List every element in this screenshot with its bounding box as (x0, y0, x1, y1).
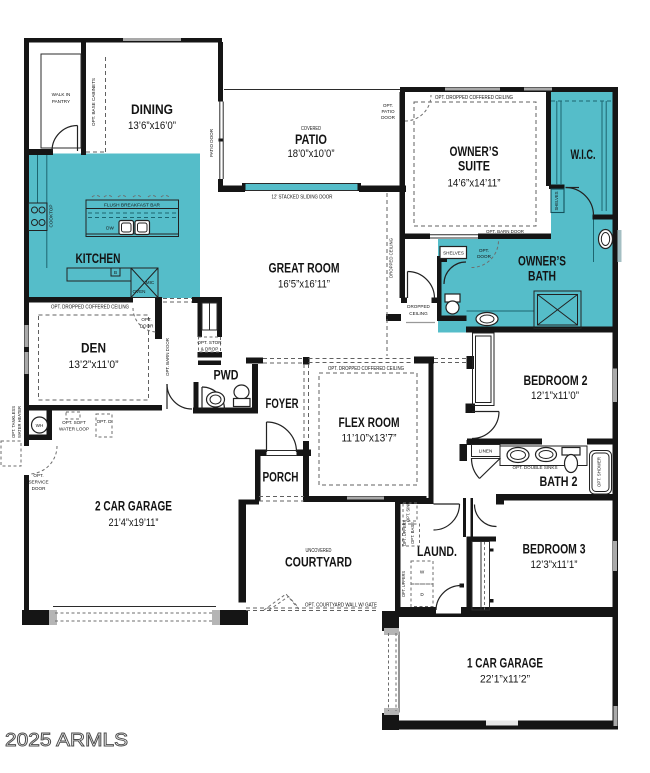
svg-text:OPT. TANKLESS: OPT. TANKLESS (11, 406, 16, 438)
svg-text:LAUND.: LAUND. (417, 544, 457, 559)
svg-text:SERVICE: SERVICE (28, 480, 48, 485)
svg-text:DROPPED: DROPPED (407, 304, 430, 309)
svg-text:OPT.: OPT. (33, 473, 43, 478)
svg-text:18’0”x10’0”: 18’0”x10’0” (288, 148, 335, 160)
svg-text:OPT. BARN DOOR: OPT. BARN DOOR (165, 337, 170, 376)
svg-text:MIC: MIC (146, 280, 155, 285)
svg-text:FLEX ROOM: FLEX ROOM (339, 415, 400, 430)
svg-text:PATIO: PATIO (381, 109, 395, 114)
svg-text:OPT. BASE CABINETS: OPT. BASE CABINETS (91, 78, 96, 126)
svg-text:WATER LOOP: WATER LOOP (59, 427, 89, 432)
svg-text:GREAT ROOM: GREAT ROOM (269, 261, 340, 276)
svg-text:SUITE: SUITE (458, 159, 490, 174)
svg-text:WATER HEATER: WATER HEATER (17, 405, 22, 438)
svg-text:CEILING: CEILING (409, 311, 428, 316)
svg-text:BATH: BATH (528, 269, 556, 284)
svg-text:OPT. DROPPED COFFERED CEILING: OPT. DROPPED COFFERED CEILING (435, 95, 513, 101)
svg-text:11’10”x13’7”: 11’10”x13’7” (342, 433, 397, 445)
svg-text:PATIO DOOR: PATIO DOOR (209, 128, 214, 157)
svg-text:DOOR: DOOR (477, 254, 491, 259)
svg-text:DOOR: DOOR (32, 486, 46, 491)
svg-text:OPT. BARN DOOR: OPT. BARN DOOR (486, 229, 525, 234)
svg-text:DOOR: DOOR (381, 115, 395, 120)
svg-text:OPT. COURTYARD WALL W/ GATE: OPT. COURTYARD WALL W/ GATE (305, 603, 377, 609)
svg-text:OPT. DROPPED COFFERED CEILING: OPT. DROPPED COFFERED CEILING (51, 305, 129, 311)
svg-text:2 CAR GARAGE: 2 CAR GARAGE (95, 499, 172, 514)
svg-text:OWNER’S: OWNER’S (518, 254, 566, 269)
svg-text:KITCHEN: KITCHEN (76, 251, 121, 266)
svg-text:22’1”x11’2”: 22’1”x11’2” (480, 674, 530, 686)
svg-text:W: W (420, 570, 425, 575)
svg-text:OPT. UPPERS: OPT. UPPERS (401, 571, 406, 597)
svg-text:BEDROOM 2: BEDROOM 2 (524, 373, 588, 388)
svg-text:OVEN: OVEN (132, 289, 145, 294)
svg-text:OPT. SOFT: OPT. SOFT (62, 420, 86, 425)
svg-text:PATIO: PATIO (295, 132, 327, 147)
svg-text:13’6”x16’0”: 13’6”x16’0” (128, 120, 176, 132)
svg-text:PANTRY: PANTRY (52, 99, 70, 104)
svg-text:OPT. D: OPT. D (97, 419, 112, 424)
svg-text:OPT. BASE: OPT. BASE (410, 522, 415, 544)
svg-text:OPT.: OPT. (383, 103, 393, 108)
svg-text:FLUSH BREAKFAST BAR: FLUSH BREAKFAST BAR (104, 203, 161, 208)
svg-text:BEDROOM 3: BEDROOM 3 (523, 542, 586, 557)
svg-text:1 CAR GARAGE: 1 CAR GARAGE (467, 656, 543, 671)
svg-text:OPT. DROPPED COFFERED CEILING: OPT. DROPPED COFFERED CEILING (328, 366, 404, 372)
svg-text:16’5”x16’11”: 16’5”x16’11” (278, 279, 330, 291)
svg-text:21’4”x19’11”: 21’4”x19’11” (109, 517, 159, 529)
svg-text:DEN: DEN (81, 341, 106, 356)
svg-text:DW: DW (106, 226, 114, 231)
svg-text:OPT.: OPT. (141, 317, 151, 322)
svg-text:PORCH: PORCH (263, 470, 299, 485)
svg-text:OPT.: OPT. (479, 248, 489, 253)
svg-text:& DROP: & DROP (201, 347, 219, 352)
svg-text:OPT. SINK: OPT. SINK (406, 501, 411, 522)
svg-text:OPT. DOUBLE SINKS: OPT. DOUBLE SINKS (513, 465, 558, 470)
svg-text:OPT. STOR: OPT. STOR (197, 340, 222, 345)
svg-text:PWD: PWD (214, 368, 239, 383)
svg-text:OWNER’S: OWNER’S (450, 144, 499, 159)
svg-text:COOKTOP: COOKTOP (49, 205, 54, 228)
svg-text:2025 ARMLS: 2025 ARMLS (5, 730, 128, 750)
svg-text:DOOR: DOOR (140, 324, 154, 329)
svg-text:14’6”x14’11”: 14’6”x14’11” (448, 178, 501, 190)
svg-text:FOYER: FOYER (266, 396, 299, 411)
svg-text:12’ STACKED SLIDING DOOR: 12’ STACKED SLIDING DOOR (272, 195, 333, 201)
svg-text:12’1”x11’0”: 12’1”x11’0” (531, 390, 579, 402)
svg-text:W.I.C.: W.I.C. (571, 147, 596, 162)
svg-text:WALK IN: WALK IN (52, 92, 71, 97)
svg-text:13’2”x11’0”: 13’2”x11’0” (69, 359, 119, 371)
svg-text:DROPPED CEILING: DROPPED CEILING (389, 238, 394, 278)
svg-text:OPT. UPPERS: OPT. UPPERS (402, 520, 407, 546)
svg-text:SHELVES: SHELVES (554, 192, 559, 211)
svg-text:COURTYARD: COURTYARD (285, 555, 352, 570)
svg-text:SHELVES: SHELVES (443, 251, 464, 256)
svg-text:DINING: DINING (131, 102, 173, 117)
svg-text:LINEN: LINEN (479, 449, 493, 454)
svg-text:WH: WH (36, 423, 44, 428)
svg-text:12’3”x11’1”: 12’3”x11’1” (531, 559, 578, 571)
svg-text:B: B (114, 270, 117, 275)
svg-text:OPT. SHOWER: OPT. SHOWER (597, 456, 602, 487)
svg-text:UNCOVERED: UNCOVERED (306, 548, 332, 554)
svg-text:BATH 2: BATH 2 (540, 474, 578, 489)
